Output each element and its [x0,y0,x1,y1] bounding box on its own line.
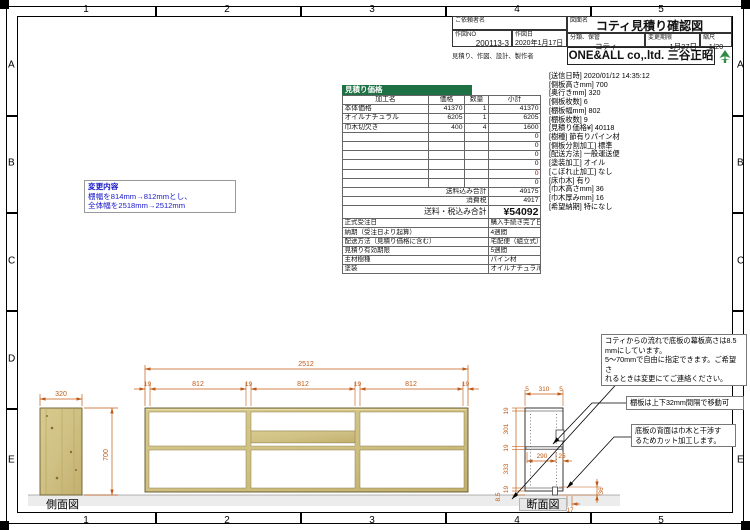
dim-sec-top: 5 [525,386,529,393]
dim-sec-left: 19 [503,444,510,452]
section-view-label: 断面図 [519,498,567,511]
drawing-sheet: 1 2 3 4 5 1 2 3 4 5 A B C D E A B C D E … [0,0,750,530]
dim-sec-top: 5 [559,386,563,393]
dim-sec-inner: 290 [537,453,548,460]
dim-sec-top: 310 [539,386,550,393]
note-line: コティからの流れで底板の幕板高さは8.5 [605,336,743,346]
note-line: 5〜70mmで自由に指定できます。ご希望さ [605,355,743,374]
note-line: 底板の背面は巾木と干渉す [635,426,732,436]
note-shelf-pitch: 棚板は上下32mm間隔で移動可 [626,396,744,410]
front-elevation [145,408,468,492]
side-view-label: 側面図 [46,496,79,512]
drawing-canvas: 320 700 2512 [0,0,750,530]
dim-front-seg: 812 [297,381,309,388]
dim-front-seg: 19 [245,381,253,388]
dim-front-total: 2512 [298,361,314,368]
dim-side-height: 700 [103,449,110,461]
dim-sec-left: 8.5 [495,492,502,501]
note-line: れるときは変更にてご連絡ください。 [605,374,743,384]
dim-side-width: 320 [55,391,67,398]
side-view: 320 700 [40,391,118,495]
dim-sec-inner: 25 [558,453,566,460]
note-apron-height: コティからの流れで底板の幕板高さは8.5 mmにしています。 5〜70mmで自由… [601,334,747,386]
dim-sec-left: 19 [503,486,510,494]
dim-skirt-height: 36 [598,487,605,495]
dim-front-seg: 19 [144,381,152,388]
dim-sec-left: 301 [503,423,510,434]
dim-sec-left: 333 [503,463,510,474]
dim-sec-left: 19 [503,407,510,415]
dim-front-seg: 812 [192,381,204,388]
dim-front-seg: 812 [405,381,417,388]
dim-front-seg: 19 [462,381,470,388]
front-dimensions: 2512 19 812 19 812 19 812 19 [134,361,479,406]
note-line: るためカット加工します。 [635,436,732,446]
dim-front-seg: 19 [354,381,362,388]
note-bottom-cut: 底板の背面は巾木と干渉す るためカット加工します。 [631,424,736,447]
dim-skirt-cut: 17 [566,507,574,514]
note-line: mmにしています。 [605,346,743,356]
